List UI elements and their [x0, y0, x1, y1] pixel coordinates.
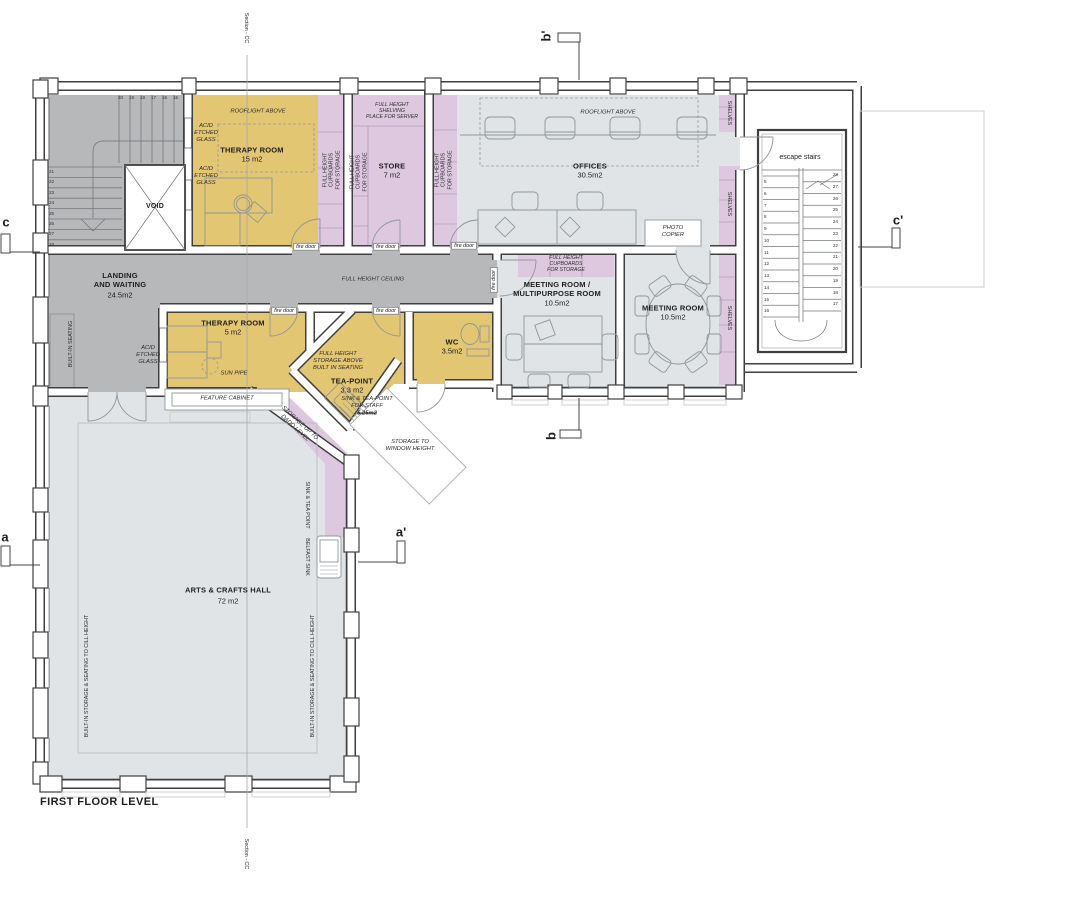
- acid-glass-label-2: ACID ETCHED GLASS: [194, 166, 218, 186]
- section-b-flag: [560, 430, 581, 438]
- escape-stairs-label: escape stairs: [779, 154, 820, 162]
- storage-window-label: STORAGE TO WINDOW HEIGHT: [386, 439, 435, 453]
- escape-stairs: [758, 111, 984, 352]
- landing-size: 24.5m2: [107, 292, 132, 301]
- feature-cabinet-label: FEATURE CABINET: [200, 396, 253, 403]
- belfast-sink-label: BELFAST SINK: [304, 538, 310, 576]
- section-cc-label-top: Section - CC: [243, 13, 249, 44]
- offices-size: 30.5m2: [577, 172, 602, 181]
- section-b-prime-label: b': [538, 30, 553, 41]
- shelves-label-2: SHELVES: [726, 192, 732, 216]
- section-a-prime-flag: [397, 541, 405, 563]
- wc-size: 3.5m2: [442, 348, 463, 357]
- void-label: VOID: [146, 203, 164, 211]
- page-title: FIRST FLOOR LEVEL: [40, 796, 159, 809]
- photo-copier-label: PHOTO COPIER: [662, 225, 684, 239]
- therapy-room-small-size: 5 m2: [225, 329, 242, 338]
- therapy-room-large-size: 15 m2: [242, 156, 263, 165]
- built-in-storage-label-right: BUILT-IN STORAGE & SEATING TO CILL HEIGH…: [310, 615, 316, 738]
- section-c-prime-flag: [892, 228, 900, 248]
- section-c-label: c: [2, 214, 9, 229]
- fire-door-tag-3: fire door: [451, 242, 477, 250]
- cupboards-label-1: FULL HEIGHT CUPBOARDS FOR STORAGE: [322, 150, 341, 189]
- belfast-sink-fixture: [317, 536, 341, 578]
- sun-pipe-label: SUN PIPE: [220, 371, 247, 378]
- acid-glass-label-3: ACID ETCHED GLASS: [136, 345, 160, 365]
- section-b-label: b: [543, 432, 558, 440]
- shelves-label-1: SHELVES: [726, 101, 732, 125]
- sink-tea-point-label: SINK & TEA POINT: [304, 481, 310, 528]
- hall-name: ARTS & CRAFTS HALL: [185, 587, 271, 596]
- shelves-label-3: SHELVES: [726, 306, 732, 330]
- section-cc-label-bottom: Section - CC: [243, 839, 249, 870]
- adjacent-roof-outline: [860, 111, 984, 287]
- tea-point-size: 3.3 m2: [341, 387, 364, 396]
- hall-size: 72 m2: [218, 598, 239, 607]
- meeting-multipurpose-size: 10.5m2: [544, 300, 569, 309]
- sink-tea-staff-label: SINK & TEA-POINT FOR STAFF: [341, 396, 393, 410]
- floor-plan: Section - CC Section - CC b' b c c' a a'…: [0, 0, 1080, 899]
- cupboards-label-3: FULL HEIGHT CUPBOARDS FOR STORAGE: [434, 150, 453, 189]
- rooflight-label-offices: ROOFLIGHT ABOVE: [580, 110, 635, 117]
- full-height-ceiling-label: FULL HEIGHT CEILING: [342, 277, 404, 284]
- section-a-flag: [1, 546, 10, 566]
- meeting-multipurpose-name: MEETING ROOM / MULTIPURPOSE ROOM: [513, 281, 601, 299]
- store-size: 7 m2: [384, 172, 401, 181]
- stair-enclosure: [758, 130, 846, 352]
- built-in-storage-label-left: BUILT-IN STORAGE & SEATING TO CILL HEIGH…: [84, 615, 90, 738]
- acid-glass-label-1: ACID ETCHED GLASS: [194, 123, 218, 143]
- meeting-room-size: 10.5m2: [660, 314, 685, 323]
- fire-door-tag-4: fire door: [271, 307, 297, 315]
- storage-above-seating-label: FULL HEIGHT STORAGE ABOVE BUILT IN SEATI…: [313, 351, 363, 371]
- fire-door-tag-5: fire door: [373, 307, 399, 315]
- fire-door-tag-2: fire door: [373, 243, 399, 251]
- section-a-label: a: [1, 529, 8, 544]
- fire-door-tag-6: fire door: [490, 267, 498, 293]
- built-in-seating-label: BUILT-IN SEATING: [68, 321, 74, 368]
- landing-name: LANDING AND WAITING: [94, 272, 147, 290]
- plan-drawing: [0, 0, 1080, 899]
- server-shelving-label: FULL HEIGHT SHELVING PLACE FOR SERVER: [366, 102, 418, 120]
- cupboards-label-2: FULL HEIGHT CUPBOARDS FOR STORAGE: [349, 152, 368, 191]
- section-a-prime-label: a': [396, 524, 406, 539]
- cupboards-label-4: FULL HEIGHT CUPBOARDS FOR STORAGE: [547, 255, 585, 273]
- section-c-prime-label: c': [893, 212, 903, 227]
- section-b-prime-flag: [558, 33, 580, 42]
- section-c-flag: [1, 234, 10, 253]
- sink-tea-staff-area: 5.25m2: [357, 411, 377, 418]
- rooflight-label-therapy: ROOFLIGHT ABOVE: [230, 109, 285, 116]
- fire-door-tag-1: fire door: [293, 243, 319, 251]
